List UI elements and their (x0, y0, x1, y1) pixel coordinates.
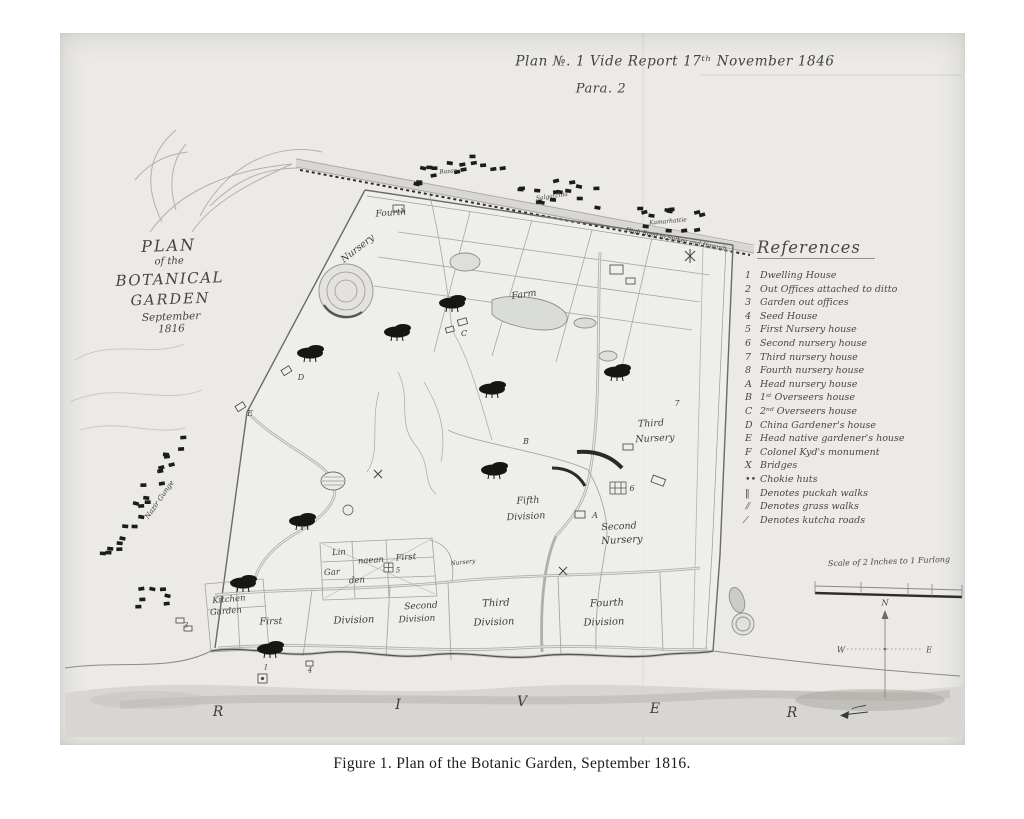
reference-text: Colonel Kyd's monument (760, 446, 940, 460)
reference-item: DChina Gardener's house (745, 419, 940, 433)
reference-key: F (745, 446, 760, 460)
title-line: BOTANICAL (104, 268, 235, 291)
reference-text: Head native gardener's house (760, 432, 940, 446)
reference-text: Fourth nursery house (760, 364, 940, 378)
west-shore-sketch (70, 344, 202, 430)
scale-bar (815, 581, 962, 597)
reference-key: 4 (745, 310, 760, 324)
figure-caption: Figure 1. Plan of the Botanic Garden, Se… (0, 755, 1024, 773)
plan-para-note: Para. 2 (576, 83, 627, 96)
reference-key: X (745, 459, 760, 473)
compass-rose (847, 610, 923, 698)
reference-item: 5First Nursery house (745, 323, 940, 337)
reference-text: 1ˢᵗ Overseers house (760, 391, 940, 405)
reference-key: 8 (745, 364, 760, 378)
reference-key: B (745, 391, 760, 405)
references-heading: References (757, 238, 875, 259)
reference-text: China Gardener's house (760, 419, 940, 433)
reference-text: Denotes kutcha roads (760, 514, 940, 528)
plan-report-note: Plan №. 1 Vide Report 17ᵗʰ November 1846 (515, 55, 834, 69)
river-bank (65, 649, 960, 676)
reference-item: 3Garden out offices (745, 296, 940, 310)
compass-west-label: W (837, 646, 845, 655)
reference-key: 2 (745, 283, 760, 297)
reference-key: C (745, 405, 760, 419)
reference-text: Garden out offices (760, 296, 940, 310)
reference-key: 3 (745, 296, 760, 310)
reference-item: 4Seed House (745, 310, 940, 324)
reference-item: B1ˢᵗ Overseers house (745, 391, 940, 405)
reference-item: ‖Denotes puckah walks (745, 487, 940, 501)
reference-key: E (745, 432, 760, 446)
reference-item: XBridges (745, 459, 940, 473)
reference-text: Third nursery house (760, 351, 940, 365)
frond-sketch (135, 130, 322, 232)
reference-text: Out Offices attached to ditto (760, 283, 940, 297)
reference-text: Denotes puckah walks (760, 487, 940, 501)
reference-key: •• (745, 473, 760, 487)
reference-key: 7 (745, 351, 760, 365)
compass-north-label: N (882, 599, 889, 608)
reference-item: 8Fourth nursery house (745, 364, 940, 378)
figure-page: Plan №. 1 Vide Report 17ᵗʰ November 1846… (0, 0, 1024, 819)
river-wash (65, 685, 963, 737)
reference-text: Second nursery house (760, 337, 940, 351)
reference-item: AHead nursery house (745, 378, 940, 392)
reference-item: EHead native gardener's house (745, 432, 940, 446)
reference-text: Dwelling House (760, 269, 940, 283)
reference-text: Head nursery house (760, 378, 940, 392)
reference-text: 2ⁿᵈ Overseers house (760, 405, 940, 419)
reference-item: 6Second nursery house (745, 337, 940, 351)
reference-item: C2ⁿᵈ Overseers house (745, 405, 940, 419)
references-list: 1Dwelling House2Out Offices attached to … (745, 269, 940, 527)
reference-key: ‖ (745, 487, 760, 501)
reference-text: Seed House (760, 310, 940, 324)
reference-item: ⁄Denotes kutcha roads (745, 514, 940, 528)
reference-item: 1Dwelling House (745, 269, 940, 283)
reference-key: ⁄ (745, 514, 760, 528)
reference-text: Chokie huts (760, 473, 940, 487)
reference-text: Denotes grass walks (760, 500, 940, 514)
references-legend: References 1Dwelling House2Out Offices a… (745, 238, 940, 527)
compass-east-label: E (926, 646, 932, 655)
reference-key: 6 (745, 337, 760, 351)
reference-text: Bridges (760, 459, 940, 473)
reference-key: D (745, 419, 760, 433)
reference-text: First Nursery house (760, 323, 940, 337)
reference-key: A (745, 378, 760, 392)
reference-item: 2Out Offices attached to ditto (745, 283, 940, 297)
reference-item: 7Third nursery house (745, 351, 940, 365)
circular-mound (319, 264, 373, 318)
reference-item: FColonel Kyd's monument (745, 446, 940, 460)
title-line: GARDEN (105, 290, 235, 311)
reference-key: 1 (745, 269, 760, 283)
map-title-block: PLAN of the BOTANICAL GARDEN September 1… (103, 234, 236, 337)
reference-item: ••Chokie huts (745, 473, 940, 487)
reference-item: ⫽Denotes grass walks (745, 500, 940, 514)
reference-key: ⫽ (745, 500, 760, 514)
reference-key: 5 (745, 323, 760, 337)
